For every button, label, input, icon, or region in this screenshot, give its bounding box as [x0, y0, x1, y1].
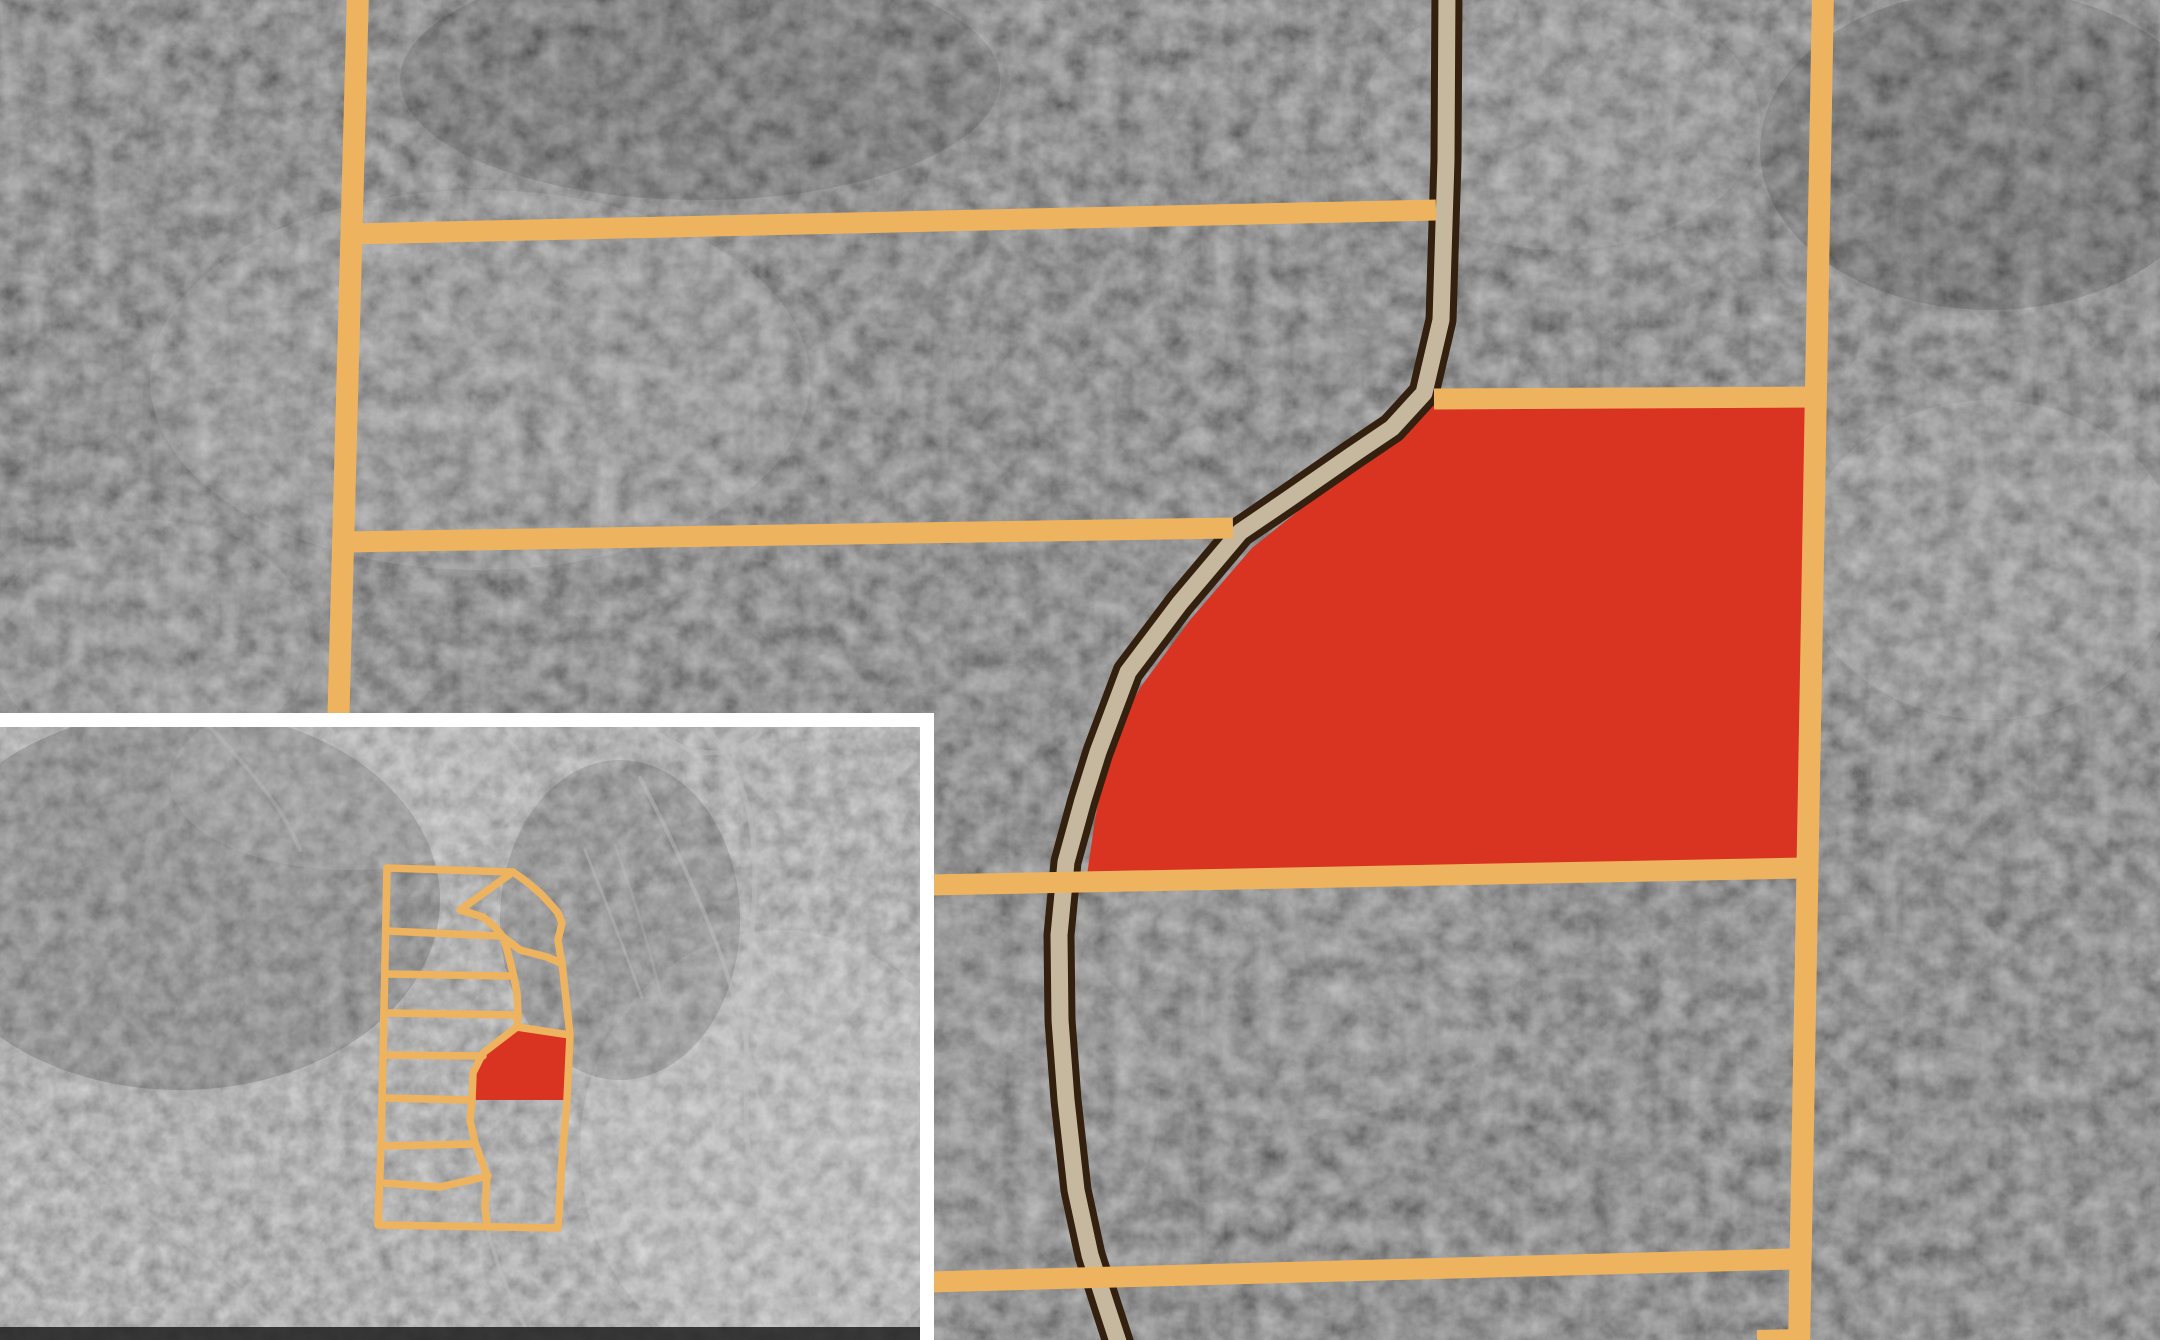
inset-bottom-shadow: [0, 1327, 920, 1340]
parcel-line-corner-stub: [1757, 1336, 1802, 1337]
parcel-line-b: [344, 528, 1233, 542]
overview-inset-map[interactable]: [0, 690, 980, 1340]
inset-grid-top-edge: [387, 868, 513, 872]
inset-grid-h4: [387, 1055, 483, 1056]
inset-grid-h5: [381, 1144, 475, 1146]
map-viewport[interactable]: [0, 0, 2160, 1340]
inset-grid-h1: [387, 931, 500, 936]
inset-grid-h2: [387, 974, 512, 976]
map-canvas[interactable]: [0, 0, 2160, 1340]
tonal-patch: [150, 190, 810, 570]
parcel-line-red-top: [1434, 397, 1816, 399]
inset-grid-h5a: [385, 1098, 472, 1100]
inset-grid-h3: [387, 1013, 518, 1015]
